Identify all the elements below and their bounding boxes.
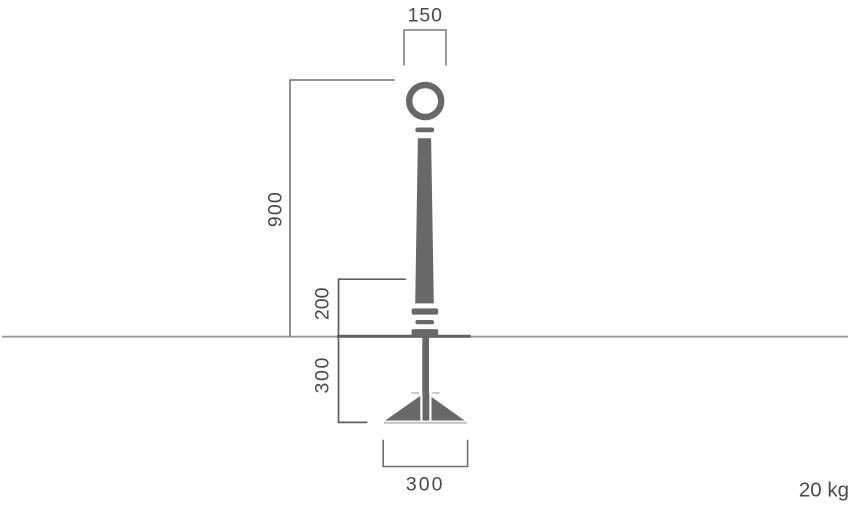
- svg-text:300: 300: [311, 356, 333, 394]
- svg-text:150: 150: [408, 4, 443, 26]
- svg-text:300: 300: [406, 474, 445, 496]
- svg-text:900: 900: [264, 191, 286, 227]
- svg-text:20 kg: 20 kg: [799, 479, 849, 502]
- svg-text:200: 200: [311, 287, 333, 320]
